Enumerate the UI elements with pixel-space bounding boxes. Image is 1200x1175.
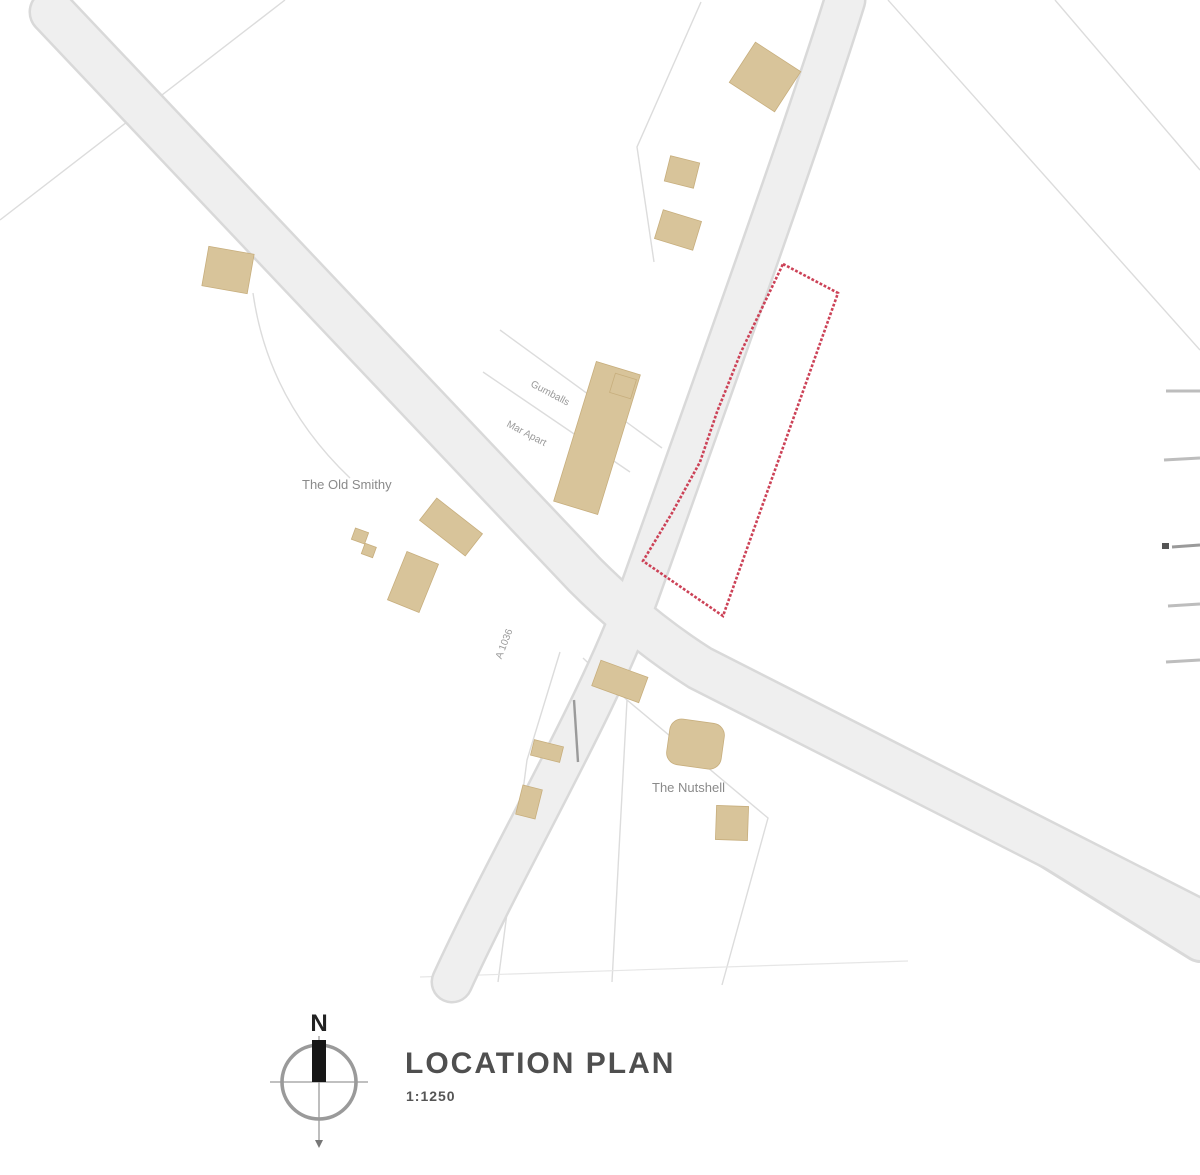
- location-plan-page: The Old Smithy The Nutshell Gumballs Mar…: [0, 0, 1200, 1175]
- label-plot2: Mar Apart: [505, 419, 549, 449]
- building-outbuilding-a: [351, 528, 368, 544]
- north-label: N: [310, 1010, 327, 1037]
- parcel-line: [888, 0, 1200, 350]
- building-old-smithy: [420, 498, 483, 556]
- sheet-edge-ticks: [1162, 391, 1200, 662]
- parcel-line: [420, 961, 908, 977]
- building-top-mid: [654, 210, 701, 250]
- compass-rose: N: [270, 1010, 368, 1148]
- edge-tick-dot: [1162, 543, 1169, 549]
- compass-south-arrowhead: [315, 1140, 323, 1148]
- location-plan-map: The Old Smithy The Nutshell Gumballs Mar…: [0, 0, 1200, 1175]
- plan-scale: 1:1250: [406, 1088, 456, 1104]
- road-surfaces: [52, 0, 1200, 982]
- building-outbuilding-b: [361, 543, 376, 557]
- building-old-smithy-barn: [387, 552, 438, 613]
- parcel-line: [1055, 0, 1200, 170]
- plan-title: LOCATION PLAN: [405, 1047, 675, 1080]
- label-road-name: A 1036: [494, 627, 516, 660]
- road-northwest-southeast-casing: [52, 12, 1200, 922]
- label-nutshell: The Nutshell: [652, 780, 725, 795]
- building-top-small: [664, 156, 699, 188]
- label-old-smithy: The Old Smithy: [302, 477, 392, 492]
- building-northwest: [202, 246, 254, 293]
- building-nutshell: [665, 717, 726, 770]
- edge-tick: [1172, 545, 1200, 547]
- edge-tick: [1164, 458, 1200, 460]
- north-needle: [312, 1040, 326, 1082]
- edge-tick: [1166, 660, 1200, 662]
- edge-tick: [1168, 604, 1200, 606]
- building-nutshell-outbuilding: [715, 805, 748, 840]
- title-block: LOCATION PLAN 1:1250: [405, 1047, 675, 1104]
- road-northwest-southeast: [52, 12, 1200, 922]
- label-plot1: Gumballs: [529, 379, 571, 409]
